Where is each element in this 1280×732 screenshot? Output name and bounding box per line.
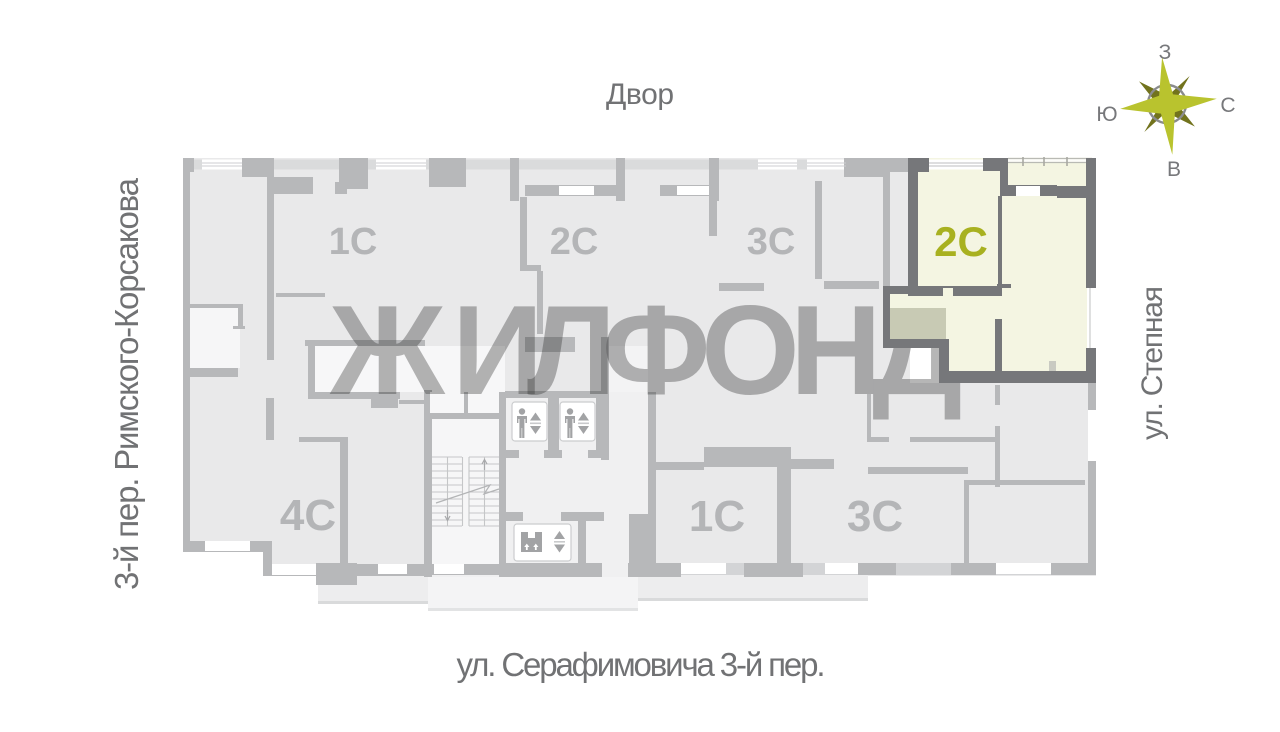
svg-text:Ж: Ж xyxy=(329,279,446,421)
svg-text:В: В xyxy=(1167,158,1181,181)
svg-text:О: О xyxy=(701,279,800,421)
svg-text:Н: Н xyxy=(790,279,882,421)
svg-text:3С: 3С xyxy=(747,221,796,263)
svg-text:С: С xyxy=(1220,94,1235,117)
svg-text:3С: 3С xyxy=(847,492,903,541)
svg-text:Ю: Ю xyxy=(1096,103,1117,126)
svg-text:1С: 1С xyxy=(329,221,378,263)
svg-text:Двор: Двор xyxy=(606,78,674,111)
svg-text:2С: 2С xyxy=(934,218,988,265)
svg-text:3-й пер. Римского-Корсакова: 3-й пер. Римского-Корсакова xyxy=(108,177,145,590)
svg-text:З: З xyxy=(1159,41,1172,64)
svg-text:ул. Серафимовича 3-й пер.: ул. Серафимовича 3-й пер. xyxy=(457,646,826,683)
svg-text:ул. Степная: ул. Степная xyxy=(1136,286,1169,440)
svg-text:Ф: Ф xyxy=(602,279,710,421)
svg-text:2С: 2С xyxy=(550,221,599,263)
svg-text:1С: 1С xyxy=(689,492,745,541)
svg-text:4С: 4С xyxy=(280,491,336,540)
